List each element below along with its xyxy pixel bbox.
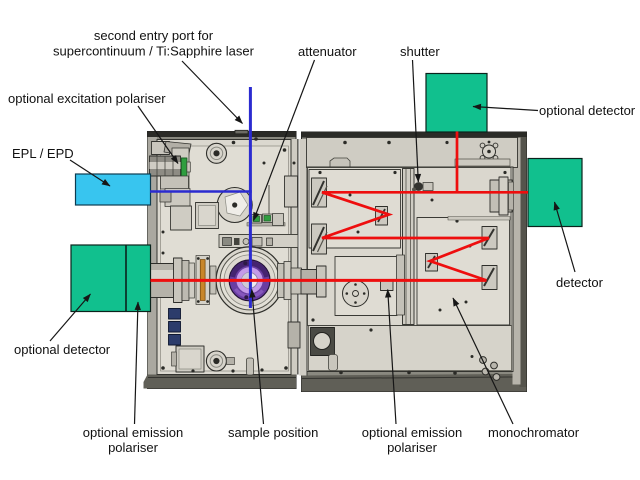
svg-text:optional detector: optional detector (14, 342, 111, 357)
svg-text:EPL / EPD: EPL / EPD (12, 146, 74, 161)
svg-text:polariser: polariser (387, 440, 438, 455)
svg-text:optional emission: optional emission (83, 425, 183, 440)
svg-text:second entry port for: second entry port for (94, 28, 214, 43)
svg-text:optional excitation polariser: optional excitation polariser (8, 91, 166, 106)
svg-text:optional detector: optional detector (539, 103, 636, 118)
svg-text:polariser: polariser (108, 440, 159, 455)
svg-text:attenuator: attenuator (298, 44, 357, 59)
svg-text:sample position: sample position (228, 425, 318, 440)
svg-text:monochromator: monochromator (488, 425, 580, 440)
svg-text:detector: detector (556, 275, 604, 290)
svg-text:supercontinuum / Ti:Sapphire: supercontinuum / Ti:Sapphire laser (53, 44, 255, 59)
svg-text:optional emission: optional emission (362, 425, 462, 440)
svg-text:shutter: shutter (400, 44, 440, 59)
